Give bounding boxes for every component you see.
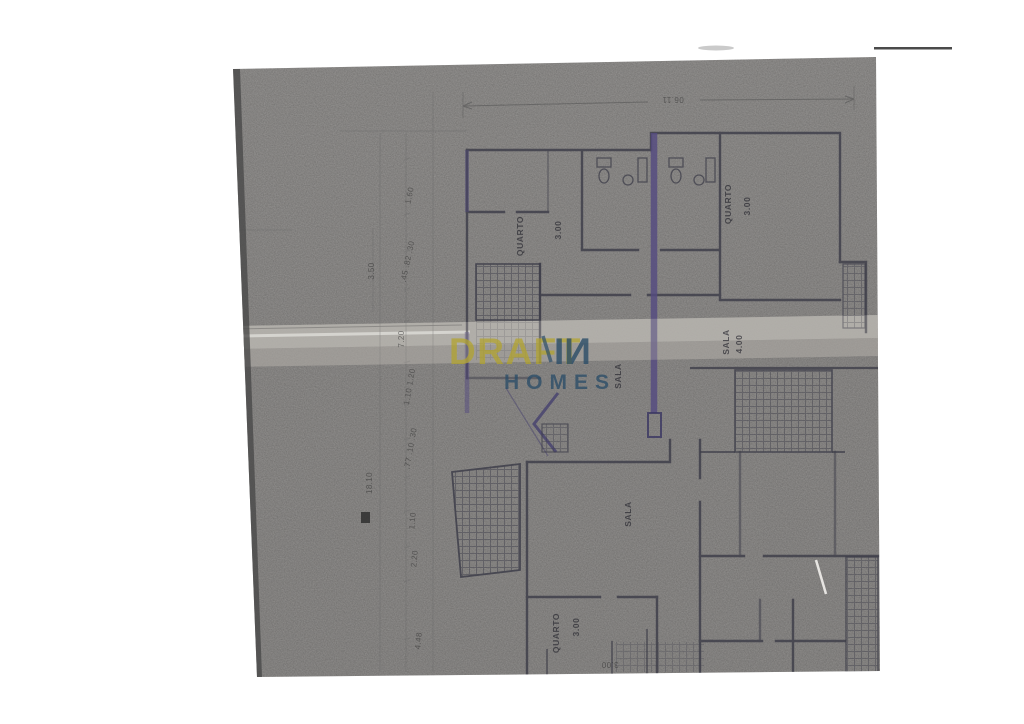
watermark-homes: HOMES [504,371,616,394]
room-dim: 4.00 [734,335,744,354]
dimension-text: 3.00 [601,660,618,669]
room-dim: 3.00 [742,197,752,216]
hatch-bottom-center [616,642,704,672]
dimension-text: 18.10 [365,472,374,494]
scan-page: 06.11 1.60 3.50 .45 .82 .30 7.20 1.10 1.… [0,0,1024,724]
bathroom-right-tiles [657,152,718,246]
dimension-text: 1.10 [407,512,417,530]
room-label-quarto: QUARTO [723,184,733,224]
stray-line-top-right [874,47,952,50]
scanned-paper-region: 06.11 1.60 3.50 .45 .82 .30 7.20 1.10 1.… [225,50,887,685]
hatch-small-center [542,424,568,452]
room-label-quarto: QUARTO [515,216,525,256]
dimension-text: 7.20 [397,330,406,347]
dimension-text: 2.20 [409,550,419,568]
smudge-top [698,46,734,51]
stair-hatch-upper [476,264,540,320]
room-label-quarto: QUARTO [551,613,561,653]
dimension-text: 06.11 [662,95,684,104]
room-label-sala: SALA [623,501,633,527]
stair-hatch-bottom-right [846,557,878,672]
dark-square-mark [361,512,370,523]
dimension-text: 3.50 [367,262,376,279]
dimension-text: 4.48 [413,632,423,650]
scanned-floor-plan: 06.11 1.60 3.50 .45 .82 .30 7.20 1.10 1.… [0,0,1024,724]
stair-hatch-right [735,370,832,452]
balcony-hatch-lower [452,464,520,577]
watermark-in: IИ [554,331,591,372]
room-dim: 3.00 [553,221,563,240]
room-dim: 3.00 [571,618,581,637]
room-label-sala: SALA [721,329,731,355]
